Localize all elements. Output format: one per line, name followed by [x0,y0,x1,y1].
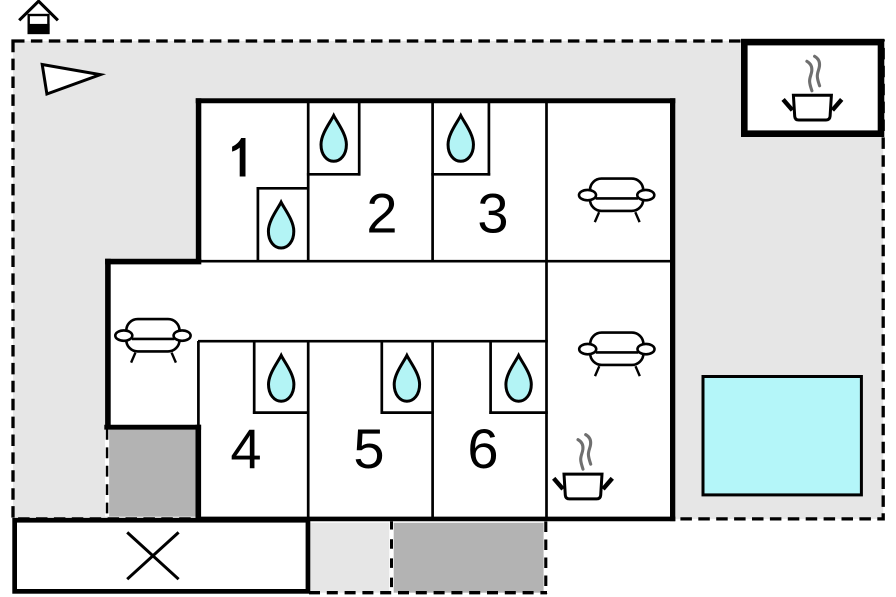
svg-text:3: 3 [477,182,508,245]
svg-text:5: 5 [353,417,384,480]
svg-text:4: 4 [230,417,261,480]
svg-text:2: 2 [366,182,397,245]
svg-text:6: 6 [467,417,498,480]
